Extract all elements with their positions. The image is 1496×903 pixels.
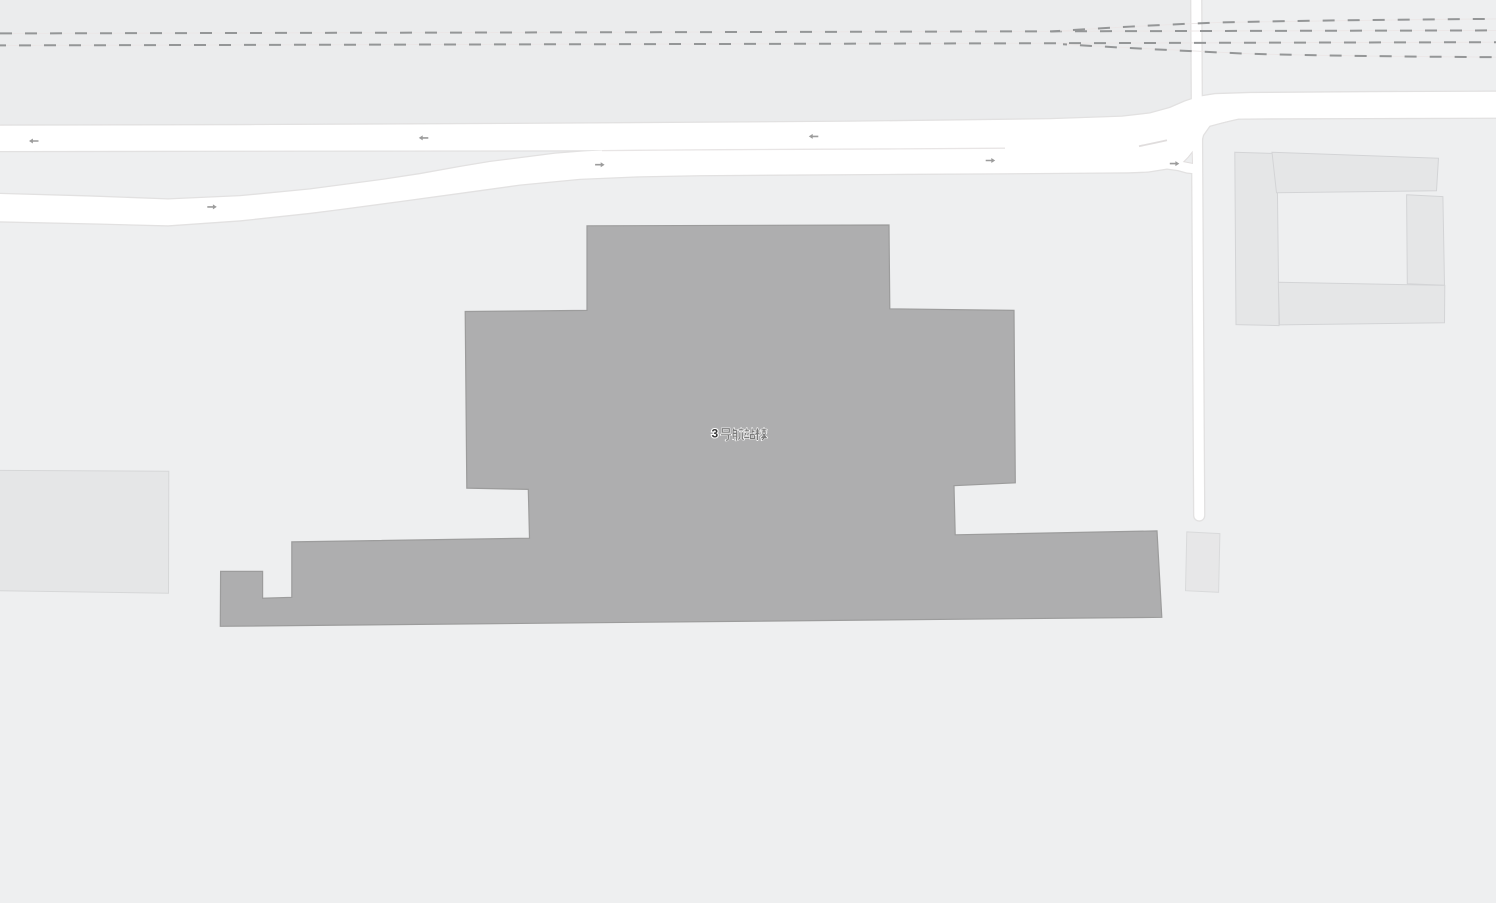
svg-text:3: 3 — [712, 426, 719, 440]
